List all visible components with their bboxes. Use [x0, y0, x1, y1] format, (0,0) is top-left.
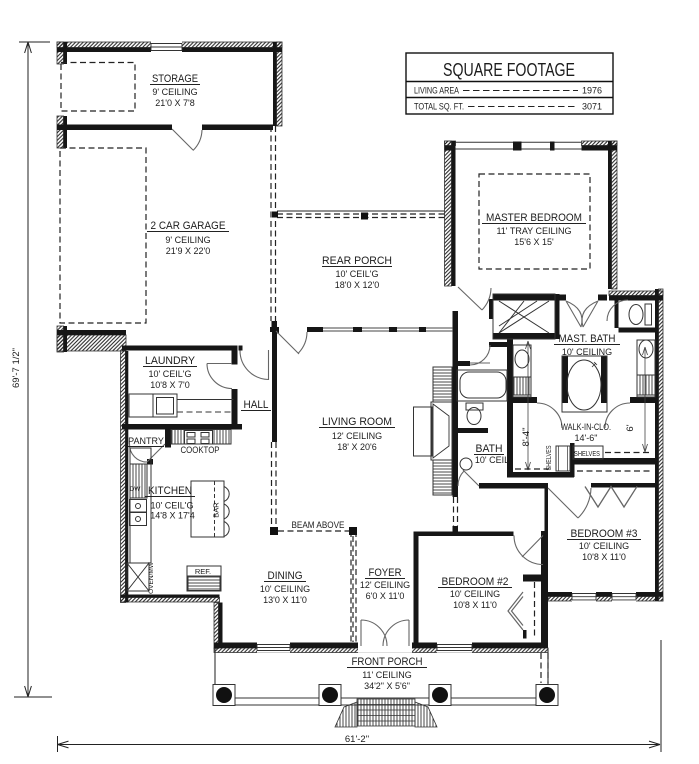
svg-text:10'8 X 11'0: 10'8 X 11'0 [582, 552, 626, 562]
svg-text:LAUNDRY: LAUNDRY [145, 355, 196, 367]
svg-text:KITCHEN: KITCHEN [148, 485, 192, 497]
svg-text:DW: DW [130, 486, 142, 493]
svg-text:1976: 1976 [582, 86, 602, 96]
svg-text:TOTAL SQ. FT.: TOTAL SQ. FT. [414, 102, 464, 112]
svg-text:BEDROOM #2: BEDROOM #2 [442, 576, 509, 588]
svg-text:FOYER: FOYER [369, 567, 402, 579]
svg-text:COOKTOP: COOKTOP [181, 445, 220, 455]
svg-text:21'9 X 22'0: 21'9 X 22'0 [166, 246, 210, 256]
svg-text:LIVING ROOM: LIVING ROOM [322, 416, 392, 428]
svg-text:10'8 X 7'0: 10'8 X 7'0 [150, 380, 189, 390]
svg-text:8'-4": 8'-4" [521, 428, 532, 447]
svg-text:REF.: REF. [195, 567, 211, 576]
svg-text:10' CEIL'G: 10' CEIL'G [151, 501, 194, 511]
svg-text:18'0 X 12'0: 18'0 X 12'0 [335, 280, 379, 290]
svg-text:SHELVES: SHELVES [544, 446, 553, 471]
svg-text:12' CEILING: 12' CEILING [360, 580, 410, 590]
svg-text:10' CEIL: 10' CEIL [475, 455, 509, 465]
svg-text:18' X 20'6: 18' X 20'6 [337, 442, 376, 452]
svg-text:11' CEILING: 11' CEILING [362, 670, 412, 680]
svg-text:6': 6' [625, 424, 636, 431]
svg-text:10' CEILING: 10' CEILING [260, 584, 310, 594]
svg-text:SQUARE FOOTAGE: SQUARE FOOTAGE [443, 59, 575, 80]
svg-text:10'8 X 11'0: 10'8 X 11'0 [453, 600, 497, 610]
svg-text:9' CEILING: 9' CEILING [165, 235, 210, 245]
svg-text:HALL: HALL [244, 399, 269, 411]
svg-text:10' CEIL'G: 10' CEIL'G [336, 269, 379, 279]
svg-text:BEAM ABOVE: BEAM ABOVE [292, 520, 345, 530]
svg-text:3071: 3071 [582, 102, 602, 112]
svg-text:WALK-IN-CLO.: WALK-IN-CLO. [561, 422, 611, 432]
svg-text:LIVING AREA: LIVING AREA [414, 86, 459, 96]
svg-text:REAR PORCH: REAR PORCH [322, 255, 392, 267]
svg-text:10' CEILING: 10' CEILING [450, 589, 500, 599]
svg-text:14'-6": 14'-6" [575, 433, 598, 443]
svg-text:6'0 X 11'0: 6'0 X 11'0 [366, 591, 405, 601]
svg-text:DINING: DINING [268, 570, 303, 582]
svg-text:BEDROOM #3: BEDROOM #3 [571, 528, 638, 540]
svg-text:10' CEILING: 10' CEILING [562, 347, 612, 357]
svg-text:13'0 X 11'0: 13'0 X 11'0 [263, 595, 307, 605]
svg-text:69'-7 1/2": 69'-7 1/2" [11, 348, 22, 388]
svg-text:SHELVES: SHELVES [574, 449, 600, 458]
svg-text:STORAGE: STORAGE [152, 73, 198, 85]
svg-text:11' TRAY CEILING: 11' TRAY CEILING [496, 226, 571, 236]
svg-text:9' CEILING: 9' CEILING [152, 87, 197, 97]
svg-text:BATH: BATH [476, 443, 503, 455]
svg-text:10' CEIL'G: 10' CEIL'G [149, 369, 192, 379]
svg-text:61'-2": 61'-2" [345, 734, 369, 745]
svg-text:MASTER BEDROOM: MASTER BEDROOM [486, 212, 582, 224]
svg-text:PANTRY: PANTRY [128, 436, 164, 446]
svg-text:2 CAR GARAGE: 2 CAR GARAGE [151, 220, 226, 232]
svg-text:34'2" X 5'6": 34'2" X 5'6" [364, 681, 410, 691]
svg-text:12' CEILING: 12' CEILING [332, 431, 382, 441]
svg-text:OVEN/MW: OVEN/MW [148, 561, 155, 594]
svg-text:FRONT PORCH: FRONT PORCH [352, 656, 423, 668]
svg-text:10' CEILING: 10' CEILING [579, 541, 629, 551]
svg-text:MAST. BATH: MAST. BATH [559, 333, 616, 345]
svg-text:BAR: BAR [212, 502, 221, 518]
svg-text:14'8 X 17'4: 14'8 X 17'4 [150, 511, 194, 521]
svg-text:21'0 X 7'8: 21'0 X 7'8 [155, 98, 194, 108]
svg-text:15'6 X 15': 15'6 X 15' [514, 237, 554, 247]
